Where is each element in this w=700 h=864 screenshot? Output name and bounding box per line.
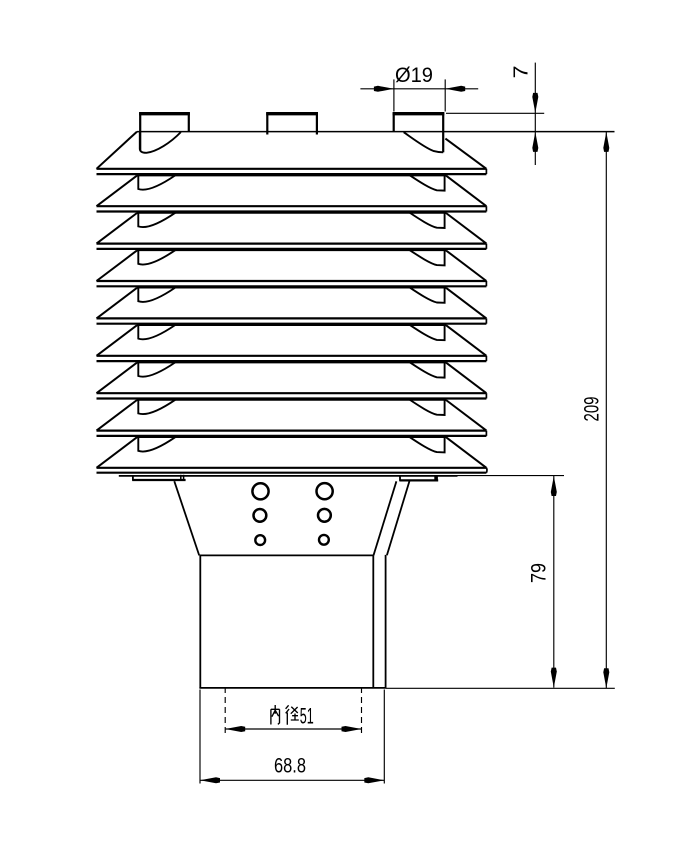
svg-text:68.8: 68.8 (274, 755, 306, 778)
svg-text:79: 79 (527, 563, 550, 583)
svg-text:Ø19: Ø19 (395, 64, 433, 87)
svg-text:51: 51 (300, 704, 314, 729)
svg-text:209: 209 (581, 397, 604, 422)
svg-text:7: 7 (511, 66, 533, 79)
